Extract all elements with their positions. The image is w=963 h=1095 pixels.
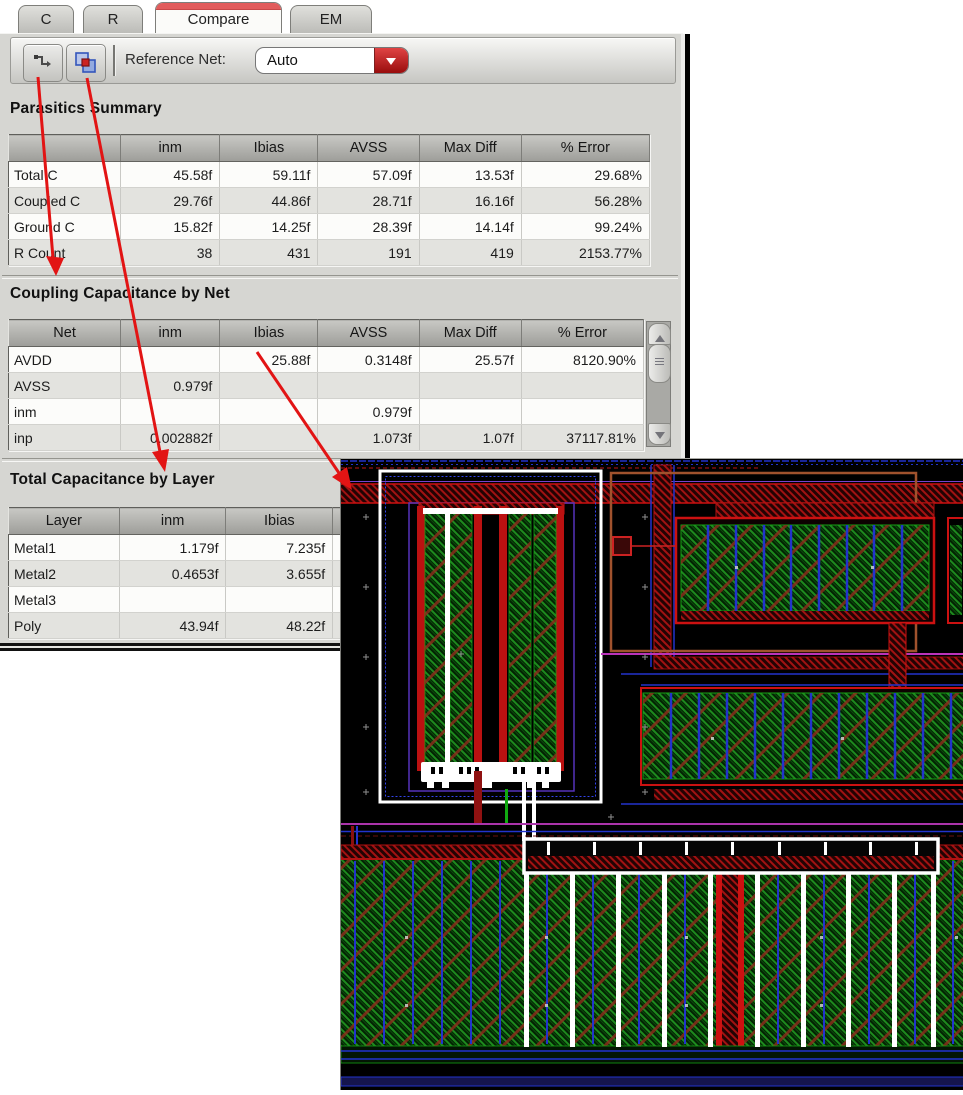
column-header[interactable]: Ibias [226, 508, 333, 535]
net-trace-button[interactable] [23, 44, 63, 82]
table-cell: 29.68% [521, 162, 649, 188]
row-label: AVDD [9, 347, 121, 373]
table-cell [521, 373, 643, 399]
tab-compare[interactable]: Compare [155, 2, 282, 33]
row-label: Metal1 [9, 535, 120, 561]
table-cell: 99.24% [521, 214, 649, 240]
column-header[interactable]: inm [121, 320, 220, 347]
layout-viewer-window[interactable] [340, 458, 963, 1090]
reference-net-label: Reference Net: [125, 51, 226, 68]
table-cell: 14.14f [419, 214, 521, 240]
transistor-array-bottom [341, 859, 963, 1086]
tab-em[interactable]: EM [290, 5, 372, 33]
table-cell: 28.39f [318, 214, 419, 240]
reference-net-value: Auto [267, 52, 298, 69]
table-cell: 191 [318, 240, 419, 266]
table-cell: 0.979f [318, 399, 419, 425]
table-cell: 431 [220, 240, 318, 266]
table-cell [419, 399, 521, 425]
table-row[interactable]: inm0.979f [9, 399, 644, 425]
column-header[interactable]: AVSS [318, 320, 419, 347]
table-cell [119, 587, 226, 613]
row-label: AVSS [9, 373, 121, 399]
table-cell: 14.25f [220, 214, 318, 240]
table-cell: 0.3148f [318, 347, 419, 373]
table-cell: 16.16f [419, 188, 521, 214]
chevron-down-icon [386, 58, 396, 70]
row-label: Metal3 [9, 587, 120, 613]
layout-canvas[interactable] [341, 459, 963, 1090]
table-row[interactable]: R Count384311914192153.77% [9, 240, 650, 266]
section-title-total-by-layer: Total Capacitance by Layer [10, 471, 215, 489]
table-cell: 25.88f [220, 347, 318, 373]
arrow-up-icon [655, 330, 665, 342]
table-cell: 7.235f [226, 535, 333, 561]
table-cell: 0.002882f [121, 425, 220, 451]
row-label: inp [9, 425, 121, 451]
scroll-down-button[interactable] [648, 423, 671, 445]
table-cell: 1.073f [318, 425, 419, 451]
dropdown-button[interactable] [374, 48, 408, 73]
table-cell: 8120.90% [521, 347, 643, 373]
poly-route [505, 789, 508, 823]
screen: { "tabs": [ {"label": "C", "active": fal… [0, 0, 963, 1089]
toolbar: Reference Net: Auto [10, 37, 676, 84]
section-divider [2, 275, 678, 279]
section-title-parasitics-summary: Parasitics Summary [10, 100, 162, 118]
table-cell: 2153.77% [521, 240, 649, 266]
table-row[interactable]: AVSS0.979f [9, 373, 644, 399]
row-label: Total C [9, 162, 121, 188]
row-label: Ground C [9, 214, 121, 240]
transistor-bank-top-right [676, 503, 963, 623]
row-label: inm [9, 399, 121, 425]
table-cell: 29.76f [121, 188, 220, 214]
overlap-compare-button[interactable] [66, 44, 106, 82]
net-trace-icon [32, 51, 54, 73]
power-strap-vertical [651, 465, 674, 667]
coupling-by-net-table: NetinmIbiasAVSSMax Diff% ErrorAVDD25.88f… [8, 319, 644, 451]
table-cell: 0.979f [121, 373, 220, 399]
column-header[interactable]: Max Diff [419, 135, 521, 162]
table-cell: 3.655f [226, 561, 333, 587]
table-cell: 1.07f [419, 425, 521, 451]
table-cell: 13.53f [419, 162, 521, 188]
column-header[interactable]: inm [119, 508, 226, 535]
table-cell: 1.179f [119, 535, 226, 561]
column-header[interactable]: % Error [521, 320, 643, 347]
table-cell: 59.11f [220, 162, 318, 188]
tab-r[interactable]: R [83, 5, 143, 33]
table-cell: 43.94f [119, 613, 226, 639]
table-cell [220, 399, 318, 425]
table-cell [419, 373, 521, 399]
scrollbar-thumb[interactable] [648, 344, 671, 383]
column-header[interactable]: Ibias [220, 135, 318, 162]
overlap-compare-icon [74, 51, 98, 75]
table-cell: 44.86f [220, 188, 318, 214]
table-row[interactable]: Total C45.58f59.11f57.09f13.53f29.68% [9, 162, 650, 188]
table-cell: 28.71f [318, 188, 419, 214]
toolbar-separator [113, 45, 115, 76]
arrow-down-icon [655, 432, 665, 444]
table-row[interactable]: Coupled C29.76f44.86f28.71f16.16f56.28% [9, 188, 650, 214]
table-cell [318, 373, 419, 399]
table-cell: 25.57f [419, 347, 521, 373]
table-cell: 45.58f [121, 162, 220, 188]
power-band-top [341, 482, 963, 504]
parasitics-summary-table: inmIbiasAVSSMax Diff% ErrorTotal C45.58f… [8, 134, 650, 266]
coupling-table-scrollbar[interactable] [646, 321, 671, 447]
table-cell: 37117.81% [521, 425, 643, 451]
column-header[interactable]: inm [121, 135, 220, 162]
scroll-up-button[interactable] [648, 323, 671, 345]
table-cell [521, 399, 643, 425]
table-cell [220, 373, 318, 399]
reference-net-dropdown[interactable]: Auto [255, 47, 409, 74]
column-header[interactable]: Ibias [220, 320, 318, 347]
table-cell [226, 587, 333, 613]
table-cell [121, 399, 220, 425]
column-header[interactable]: Layer [9, 508, 120, 535]
table-cell [121, 347, 220, 373]
table-cell: 48.22f [226, 613, 333, 639]
table-row[interactable]: Ground C15.82f14.25f28.39f14.14f99.24% [9, 214, 650, 240]
section-title-coupling-by-net: Coupling Capacitance by Net [10, 285, 230, 303]
row-label: Coupled C [9, 188, 121, 214]
table-cell [220, 425, 318, 451]
table-row[interactable]: inp0.002882f1.073f1.07f37117.81% [9, 425, 644, 451]
table-cell: 419 [419, 240, 521, 266]
table-cell: 57.09f [318, 162, 419, 188]
row-label: Poly [9, 613, 120, 639]
table-cell: 38 [121, 240, 220, 266]
column-header[interactable]: Net [9, 320, 121, 347]
row-label: R Count [9, 240, 121, 266]
via-stack [474, 771, 482, 823]
table-row[interactable]: AVDD25.88f0.3148f25.57f8120.90% [9, 347, 644, 373]
tab-c[interactable]: C [18, 5, 74, 33]
table-cell: 0.4653f [119, 561, 226, 587]
row-label: Metal2 [9, 561, 120, 587]
column-header[interactable]: % Error [521, 135, 649, 162]
table-cell: 56.28% [521, 188, 649, 214]
column-header[interactable]: Max Diff [419, 320, 521, 347]
table-cell: 15.82f [121, 214, 220, 240]
column-header[interactable]: AVSS [318, 135, 419, 162]
tab-compare-label: Compare [188, 11, 250, 28]
active-tab-stripe [156, 3, 281, 10]
column-header[interactable] [9, 135, 121, 162]
